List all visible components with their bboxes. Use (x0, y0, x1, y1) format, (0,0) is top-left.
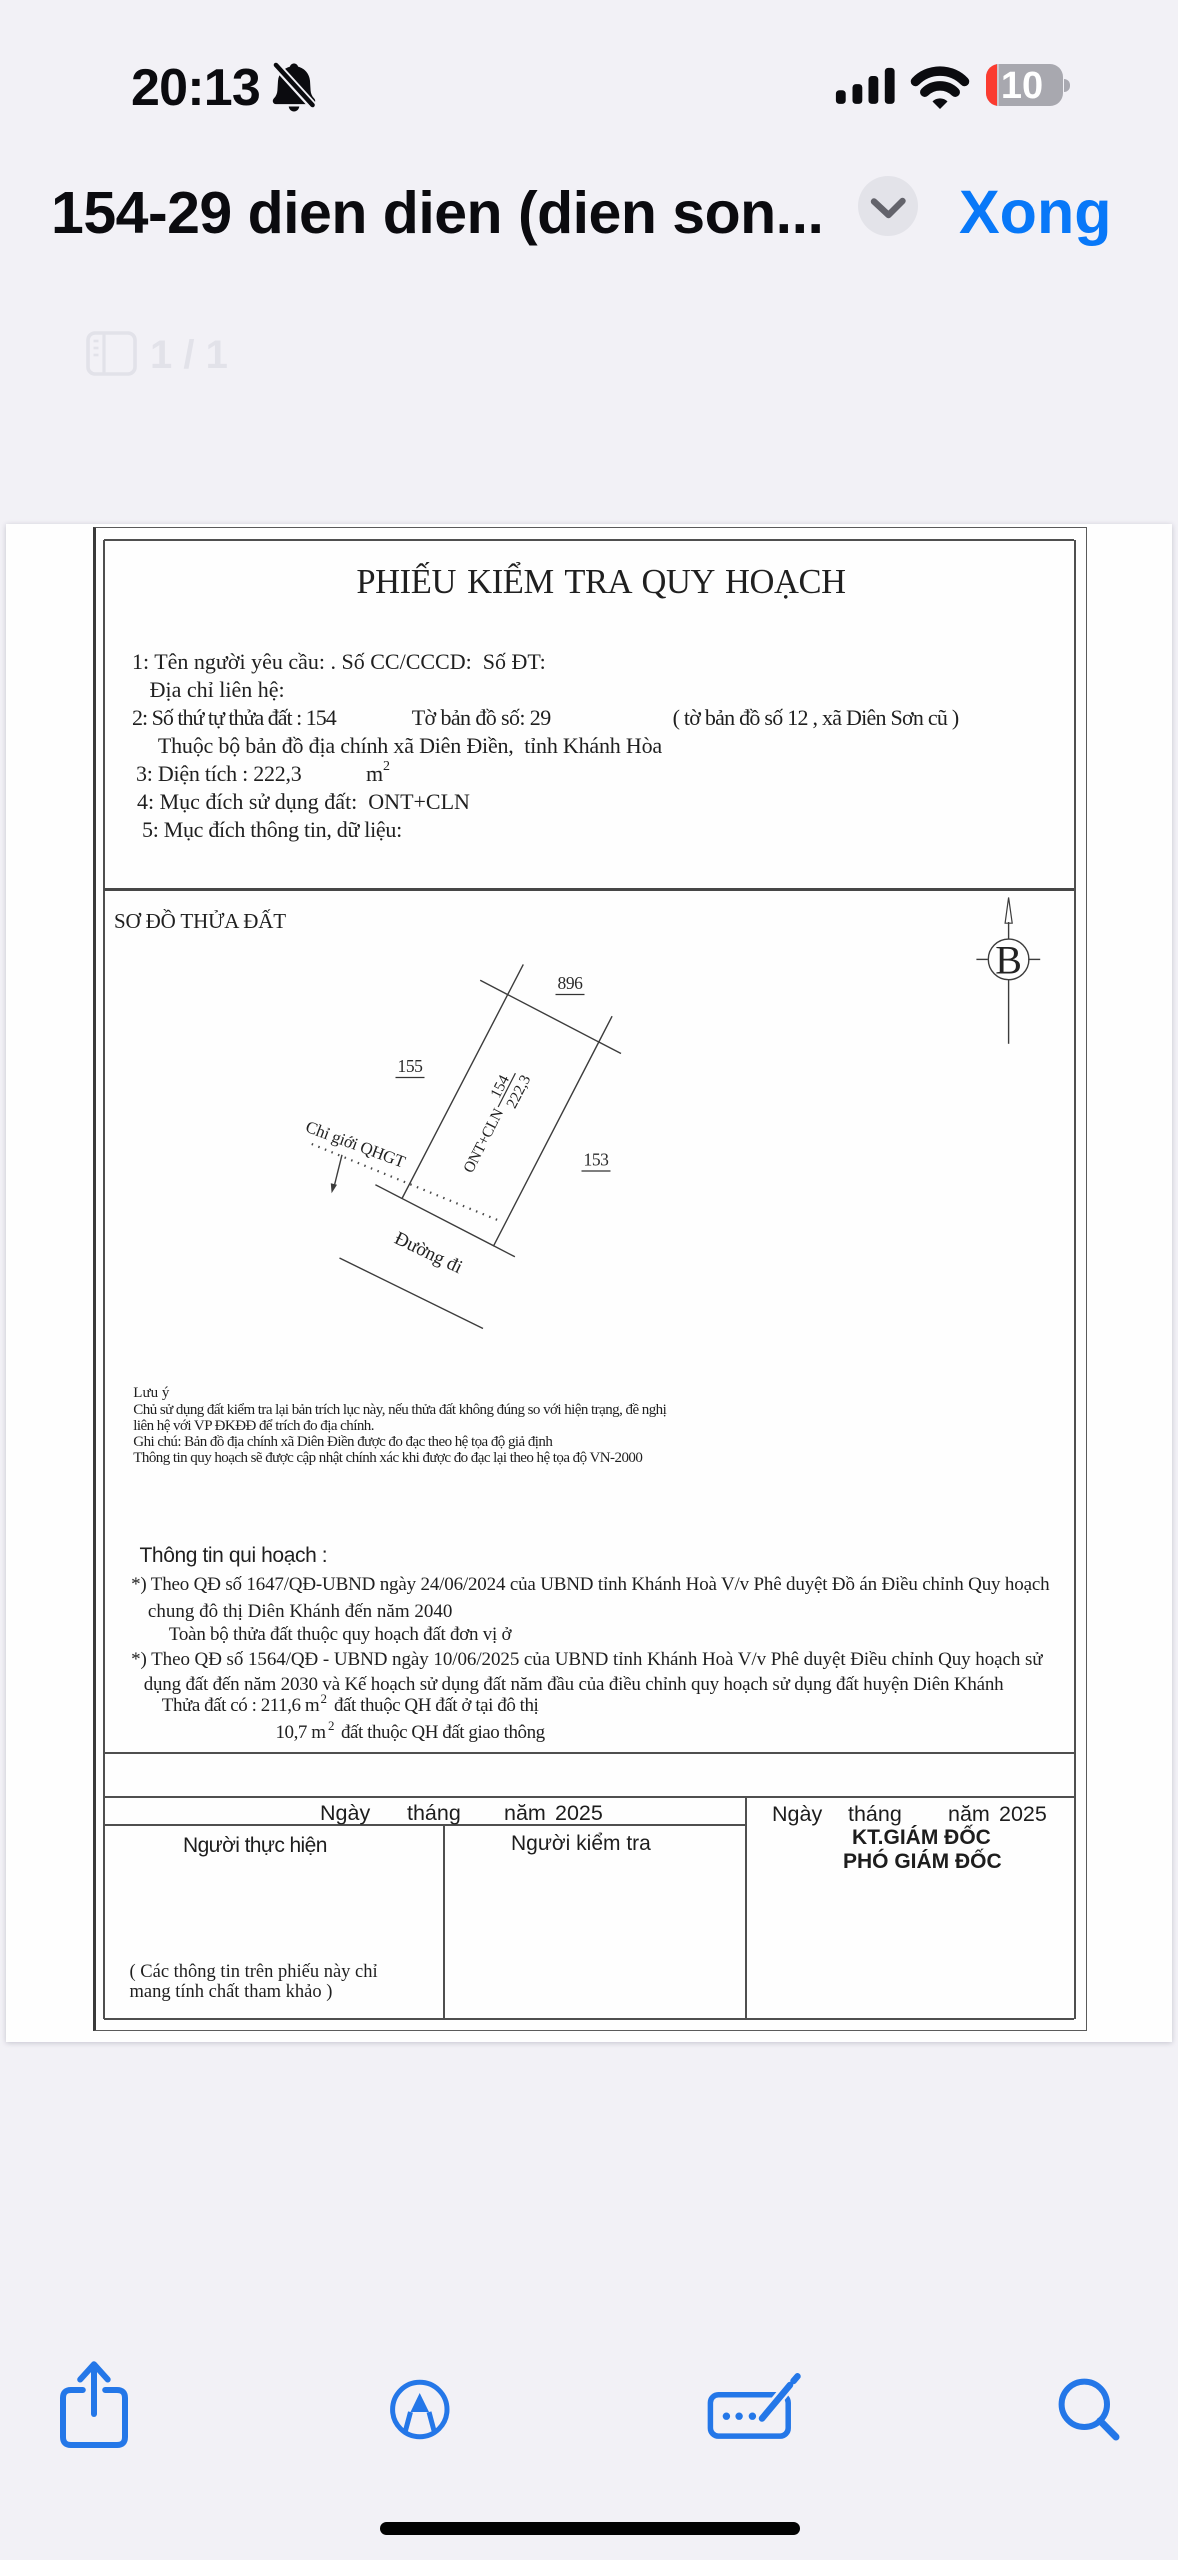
svg-text:ONT+CLN: ONT+CLN (460, 1106, 507, 1176)
svg-text:153: 153 (583, 1150, 609, 1170)
svg-text:896: 896 (557, 973, 583, 993)
svg-text:Chỉ giới QHGT: Chỉ giới QHGT (303, 1117, 408, 1172)
svg-text:B: B (995, 938, 1022, 983)
svg-text:155: 155 (397, 1056, 423, 1076)
svg-text:Đường đi: Đường đi (391, 1228, 466, 1278)
